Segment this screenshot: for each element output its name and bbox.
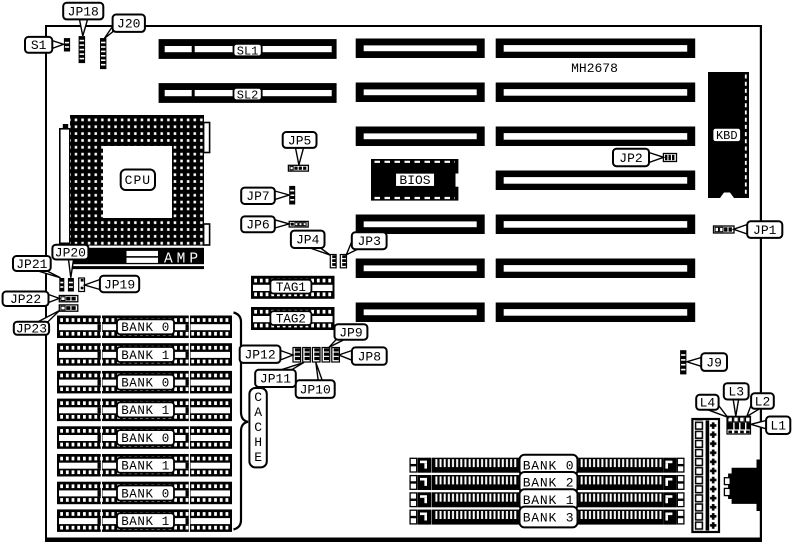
svg-text:C: C — [254, 420, 262, 435]
svg-text:JP11: JP11 — [260, 372, 291, 387]
svg-text:TAG1: TAG1 — [276, 281, 306, 295]
svg-text:L3: L3 — [728, 385, 744, 400]
svg-text:JP12: JP12 — [244, 348, 275, 363]
svg-text:JP2: JP2 — [619, 151, 642, 166]
svg-text:JP10: JP10 — [300, 382, 331, 397]
svg-text:JP4: JP4 — [296, 233, 320, 248]
svg-text:BANK 3: BANK 3 — [523, 510, 575, 525]
svg-text:H: H — [254, 435, 262, 450]
svg-text:AMP: AMP — [164, 252, 202, 268]
svg-text:JP3: JP3 — [357, 234, 380, 249]
svg-text:BANK 1: BANK 1 — [121, 460, 170, 474]
svg-text:JP5: JP5 — [288, 133, 311, 148]
svg-text:JP22: JP22 — [10, 292, 41, 307]
svg-text:JP7: JP7 — [246, 189, 269, 204]
svg-text:MH2678: MH2678 — [571, 61, 618, 76]
svg-text:JP6: JP6 — [246, 218, 269, 233]
svg-text:C: C — [254, 390, 262, 405]
svg-text:JP9: JP9 — [339, 325, 362, 340]
svg-text:E: E — [254, 450, 262, 465]
svg-text:JP19: JP19 — [104, 277, 135, 292]
svg-text:J9: J9 — [706, 355, 722, 370]
svg-text:BANK 1: BANK 1 — [121, 349, 170, 363]
svg-text:BANK 0: BANK 0 — [121, 377, 170, 391]
svg-text:CPU: CPU — [125, 173, 151, 188]
svg-text:L2: L2 — [755, 394, 771, 409]
svg-text:JP20: JP20 — [55, 245, 86, 260]
svg-text:A: A — [254, 405, 262, 420]
svg-text:BIOS: BIOS — [399, 173, 430, 188]
svg-text:BANK 0: BANK 0 — [121, 487, 170, 501]
svg-text:BANK 1: BANK 1 — [121, 404, 170, 418]
svg-text:JP21: JP21 — [16, 257, 47, 272]
svg-text:S1: S1 — [31, 38, 47, 53]
svg-text:BANK 0: BANK 0 — [121, 432, 170, 446]
svg-text:BANK 1: BANK 1 — [121, 515, 170, 529]
svg-text:BANK 0: BANK 0 — [121, 321, 170, 335]
svg-text:SL2: SL2 — [237, 88, 259, 102]
svg-text:JP1: JP1 — [753, 223, 777, 238]
svg-text:JP18: JP18 — [68, 4, 99, 19]
svg-text:TAG2: TAG2 — [276, 312, 306, 326]
svg-text:JP23: JP23 — [16, 322, 47, 337]
svg-text:SL1: SL1 — [237, 44, 259, 58]
svg-text:L4: L4 — [700, 396, 716, 411]
svg-text:J20: J20 — [117, 17, 140, 32]
svg-text:L1: L1 — [770, 419, 786, 434]
svg-text:JP8: JP8 — [358, 349, 381, 364]
svg-text:KBD: KBD — [716, 129, 738, 143]
